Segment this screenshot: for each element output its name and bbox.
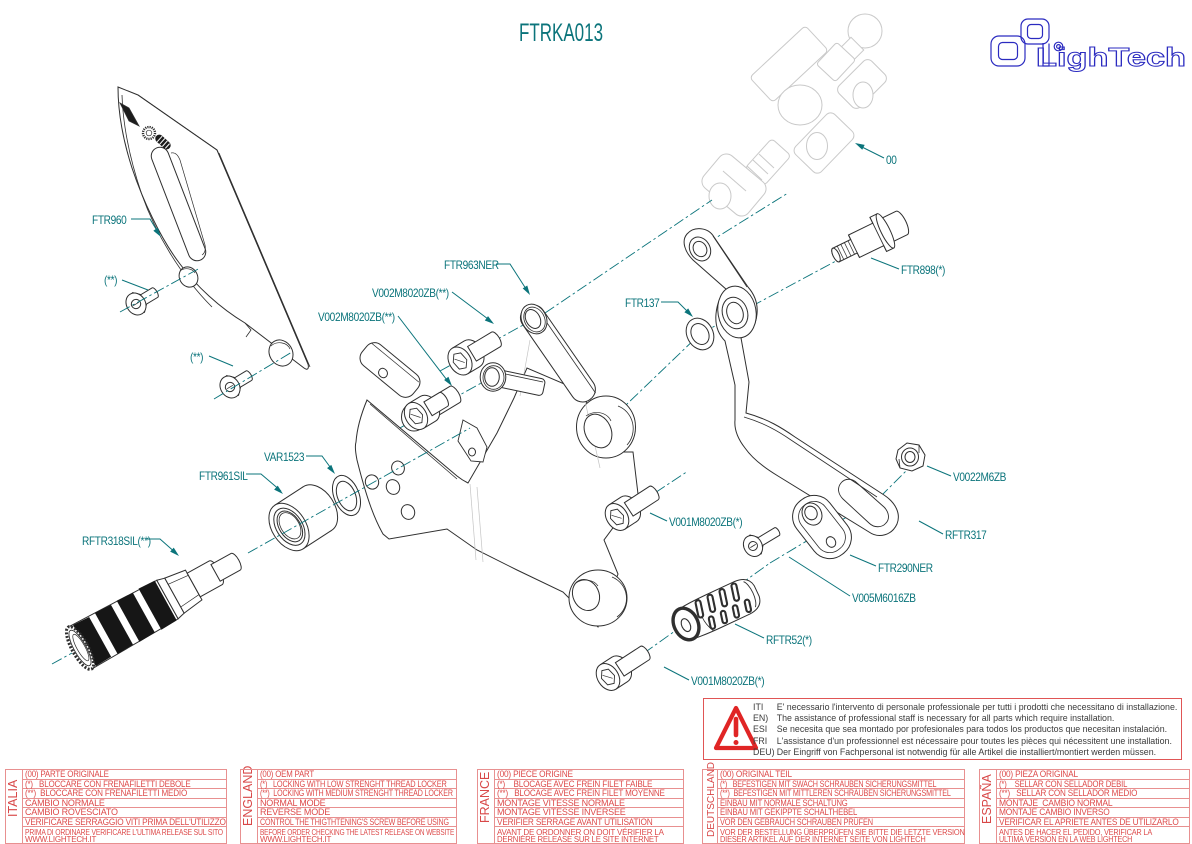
- svg-text:RFTR318SIL(**): RFTR318SIL(**): [82, 535, 151, 548]
- svg-text:FTR290NER: FTR290NER: [878, 562, 933, 575]
- svg-text:V002M8020ZB(**): V002M8020ZB(**): [318, 311, 395, 324]
- svg-text:RFTR52(*): RFTR52(*): [766, 634, 812, 647]
- svg-text:LighTech: LighTech: [1036, 42, 1186, 72]
- svg-text:V001M8020ZB(*): V001M8020ZB(*): [691, 675, 764, 688]
- svg-text:V002M8020ZB(**): V002M8020ZB(**): [372, 287, 449, 300]
- svg-text:00: 00: [886, 154, 897, 167]
- svg-text:FTR898(*): FTR898(*): [901, 264, 945, 277]
- svg-text:FTR137: FTR137: [625, 297, 660, 310]
- svg-text:FTR963NER: FTR963NER: [444, 259, 499, 272]
- svg-text:V0022M6ZB: V0022M6ZB: [953, 471, 1006, 484]
- svg-text:V001M8020ZB(*): V001M8020ZB(*): [669, 516, 742, 529]
- svg-text:(**): (**): [190, 351, 203, 364]
- svg-text:VAR1523: VAR1523: [264, 451, 304, 464]
- svg-text:FTR960: FTR960: [92, 214, 127, 227]
- svg-text:(**): (**): [104, 274, 117, 287]
- svg-text:RFTR317: RFTR317: [945, 529, 987, 542]
- svg-text:V005M6016ZB: V005M6016ZB: [852, 592, 916, 605]
- svg-text:FTR961SIL: FTR961SIL: [199, 470, 248, 483]
- svg-text:FTRKA013: FTRKA013: [519, 19, 603, 47]
